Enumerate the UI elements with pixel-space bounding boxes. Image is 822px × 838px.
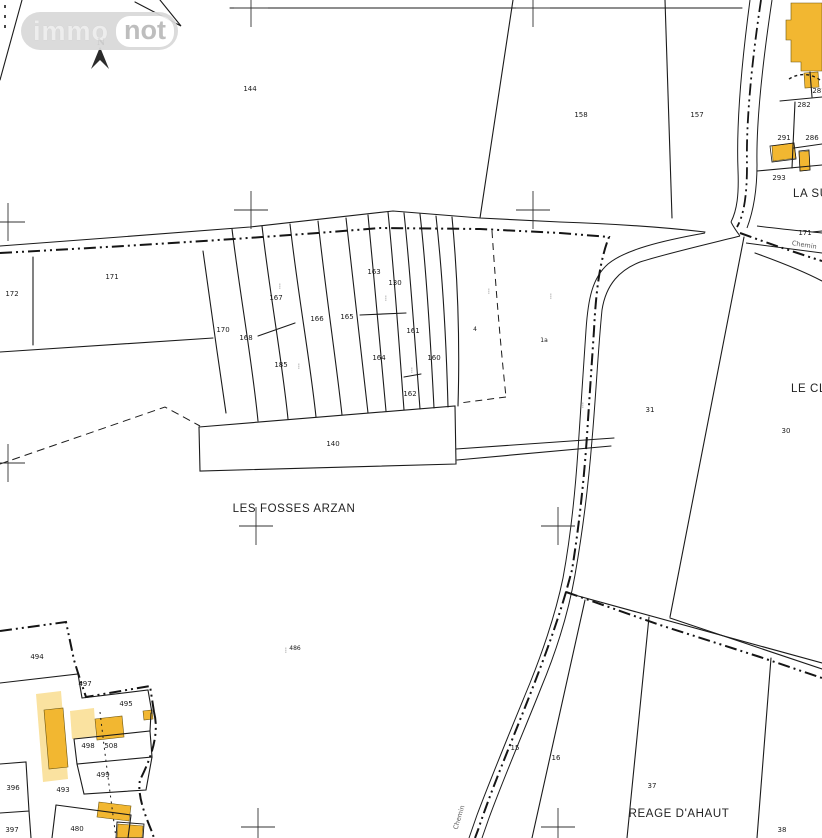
section-boundary-line [475,592,566,838]
boundary-line [0,0,22,80]
parcel-number-label: 15 [511,744,520,752]
boundary-line [757,658,771,838]
section-boundary-line [0,228,609,592]
parcel-number-label: 165 [340,313,353,321]
strip-line [232,229,258,421]
track-line [457,446,611,460]
parcel-number-label: 397 [5,826,18,834]
parcel-number-label: 30 [782,427,791,435]
tiny-parcel-mark: ⋮ [548,293,554,300]
parcel-number-label: 37 [648,782,657,790]
parcel-number-label: 291 [777,134,790,142]
dashed-line [0,407,200,464]
parcel-number-label: 163 [367,268,380,276]
dashed-line [460,397,506,403]
tiny-parcel-mark: ⋮ [283,647,289,654]
parcel-boundaries-group [0,0,822,838]
parcel-number-label: 161 [406,327,419,335]
boundary-line [0,338,213,352]
tiny-parcel-mark: ⋮ [409,367,415,374]
parcel-number-label: 282 [797,101,810,109]
tiny-parcel-mark: ⋮ [383,295,389,302]
boundary-line [670,237,744,617]
immonot-logo: immo not [21,12,178,50]
tiny-parcel-mark: ⋮ [296,363,302,370]
parcel-number-label: 140 [326,440,339,448]
section-boundary-line [566,592,822,678]
boundary-line [52,805,56,838]
parcel-number-label: 1a [540,337,548,344]
building [786,3,822,71]
road-edge [747,0,772,228]
parcel-number-label: 293 [772,174,785,182]
tiny-parcel-mark: ⋮ [277,283,283,290]
boundary-line [532,600,585,838]
parcel-number-label: 4 [473,326,477,333]
road-edge [469,233,705,838]
tiny-parcel-mark: ⋮ [486,288,492,295]
road-edge [731,0,750,222]
north-arrow-shape [91,47,109,69]
boundary-line [794,144,822,148]
parcel-number-label: 493 [56,786,69,794]
boundary-line [571,594,822,663]
main-boundary-line [0,211,705,246]
logo-not-badge: not [116,16,174,47]
place-name-label: LA SU [793,188,822,200]
road-centerline [737,0,761,227]
section-boundary-line [0,622,154,712]
boundary-line [627,617,649,838]
cadastral-map-page: 1441581571721711701681671851661651631301… [0,0,822,838]
parcel-number-label: 166 [310,315,324,323]
building [70,708,96,739]
section-boundary-group [0,0,822,838]
road-name-label: Chemin [452,804,467,830]
building [799,151,810,171]
parcel-number-label: 486 [289,645,301,652]
strip-line [436,216,448,407]
strip-line [452,217,459,406]
parcel-number-label: 170 [216,326,229,334]
parcel-number-label: 168 [239,334,252,342]
boundary-line [480,0,513,218]
parcel-number-label: 38 [778,826,787,834]
parcel-number-label: 157 [690,111,703,119]
strip-line [420,214,434,408]
strip-line [262,226,288,419]
parcel-number-label: 480 [70,825,83,833]
road-edge [482,236,740,838]
strip-line [388,212,404,410]
parcel-number-label: 396 [6,784,20,792]
parcel-number-label: 172 [5,290,18,298]
parcel-number-label: 144 [243,85,257,93]
dashed-boundaries-group [0,5,820,838]
strip-line [368,215,386,411]
parcel-140-outline [199,406,456,471]
strip-line [404,213,420,409]
logo-immo-text: immo [33,18,116,45]
parcel-number-label: 185 [274,361,287,369]
parcel-number-label: 171 [798,229,811,237]
parcel-number-label: 499 [96,771,109,779]
parcel-number-label: 130 [388,279,401,287]
parcel-number-label: 162 [403,390,416,398]
parcel-number-label: 31 [646,406,655,414]
cadastral-map: 1441581571721711701681671851661651631301… [0,0,822,838]
strip-cross-line [360,313,406,315]
boundary-line [665,0,672,218]
map-labels-group: 1441581571721711701681671851661651631301… [5,85,822,834]
parcel-number-label: 508 [104,742,117,750]
parcel-number-label: 158 [574,111,587,119]
boundary-line [29,811,31,838]
parcel-number-label: 16 [552,754,561,762]
parcel-number-label: 167 [269,294,282,302]
roads-group [469,0,822,838]
parcel-number-label: 160 [427,354,440,362]
place-name-label: REAGE D'AHAUT [629,808,730,820]
logo-not-text: not [124,15,166,45]
parcel-number-label: 494 [30,653,44,661]
boundary-line [755,253,822,281]
boundary-line [670,618,822,669]
place-name-label: LE CLO [791,383,822,395]
road-edge [757,226,822,233]
dashed-line [492,231,506,397]
parcel-number-label: 497 [78,680,91,688]
boundary-line [757,165,822,171]
parcel-number-label: 495 [119,700,132,708]
parcel-number-label: 286 [805,134,819,142]
parcel-number-label: 164 [372,354,386,362]
parcel-number-label: 287 [812,87,822,95]
strip-cross-line [404,374,421,377]
parcel-number-label: 171 [105,273,118,281]
place-name-label: LES FOSSES ARZAN [233,503,356,515]
parcel-number-label: 498 [81,742,94,750]
tiny-parcel-mark: ⋮ [580,402,586,409]
